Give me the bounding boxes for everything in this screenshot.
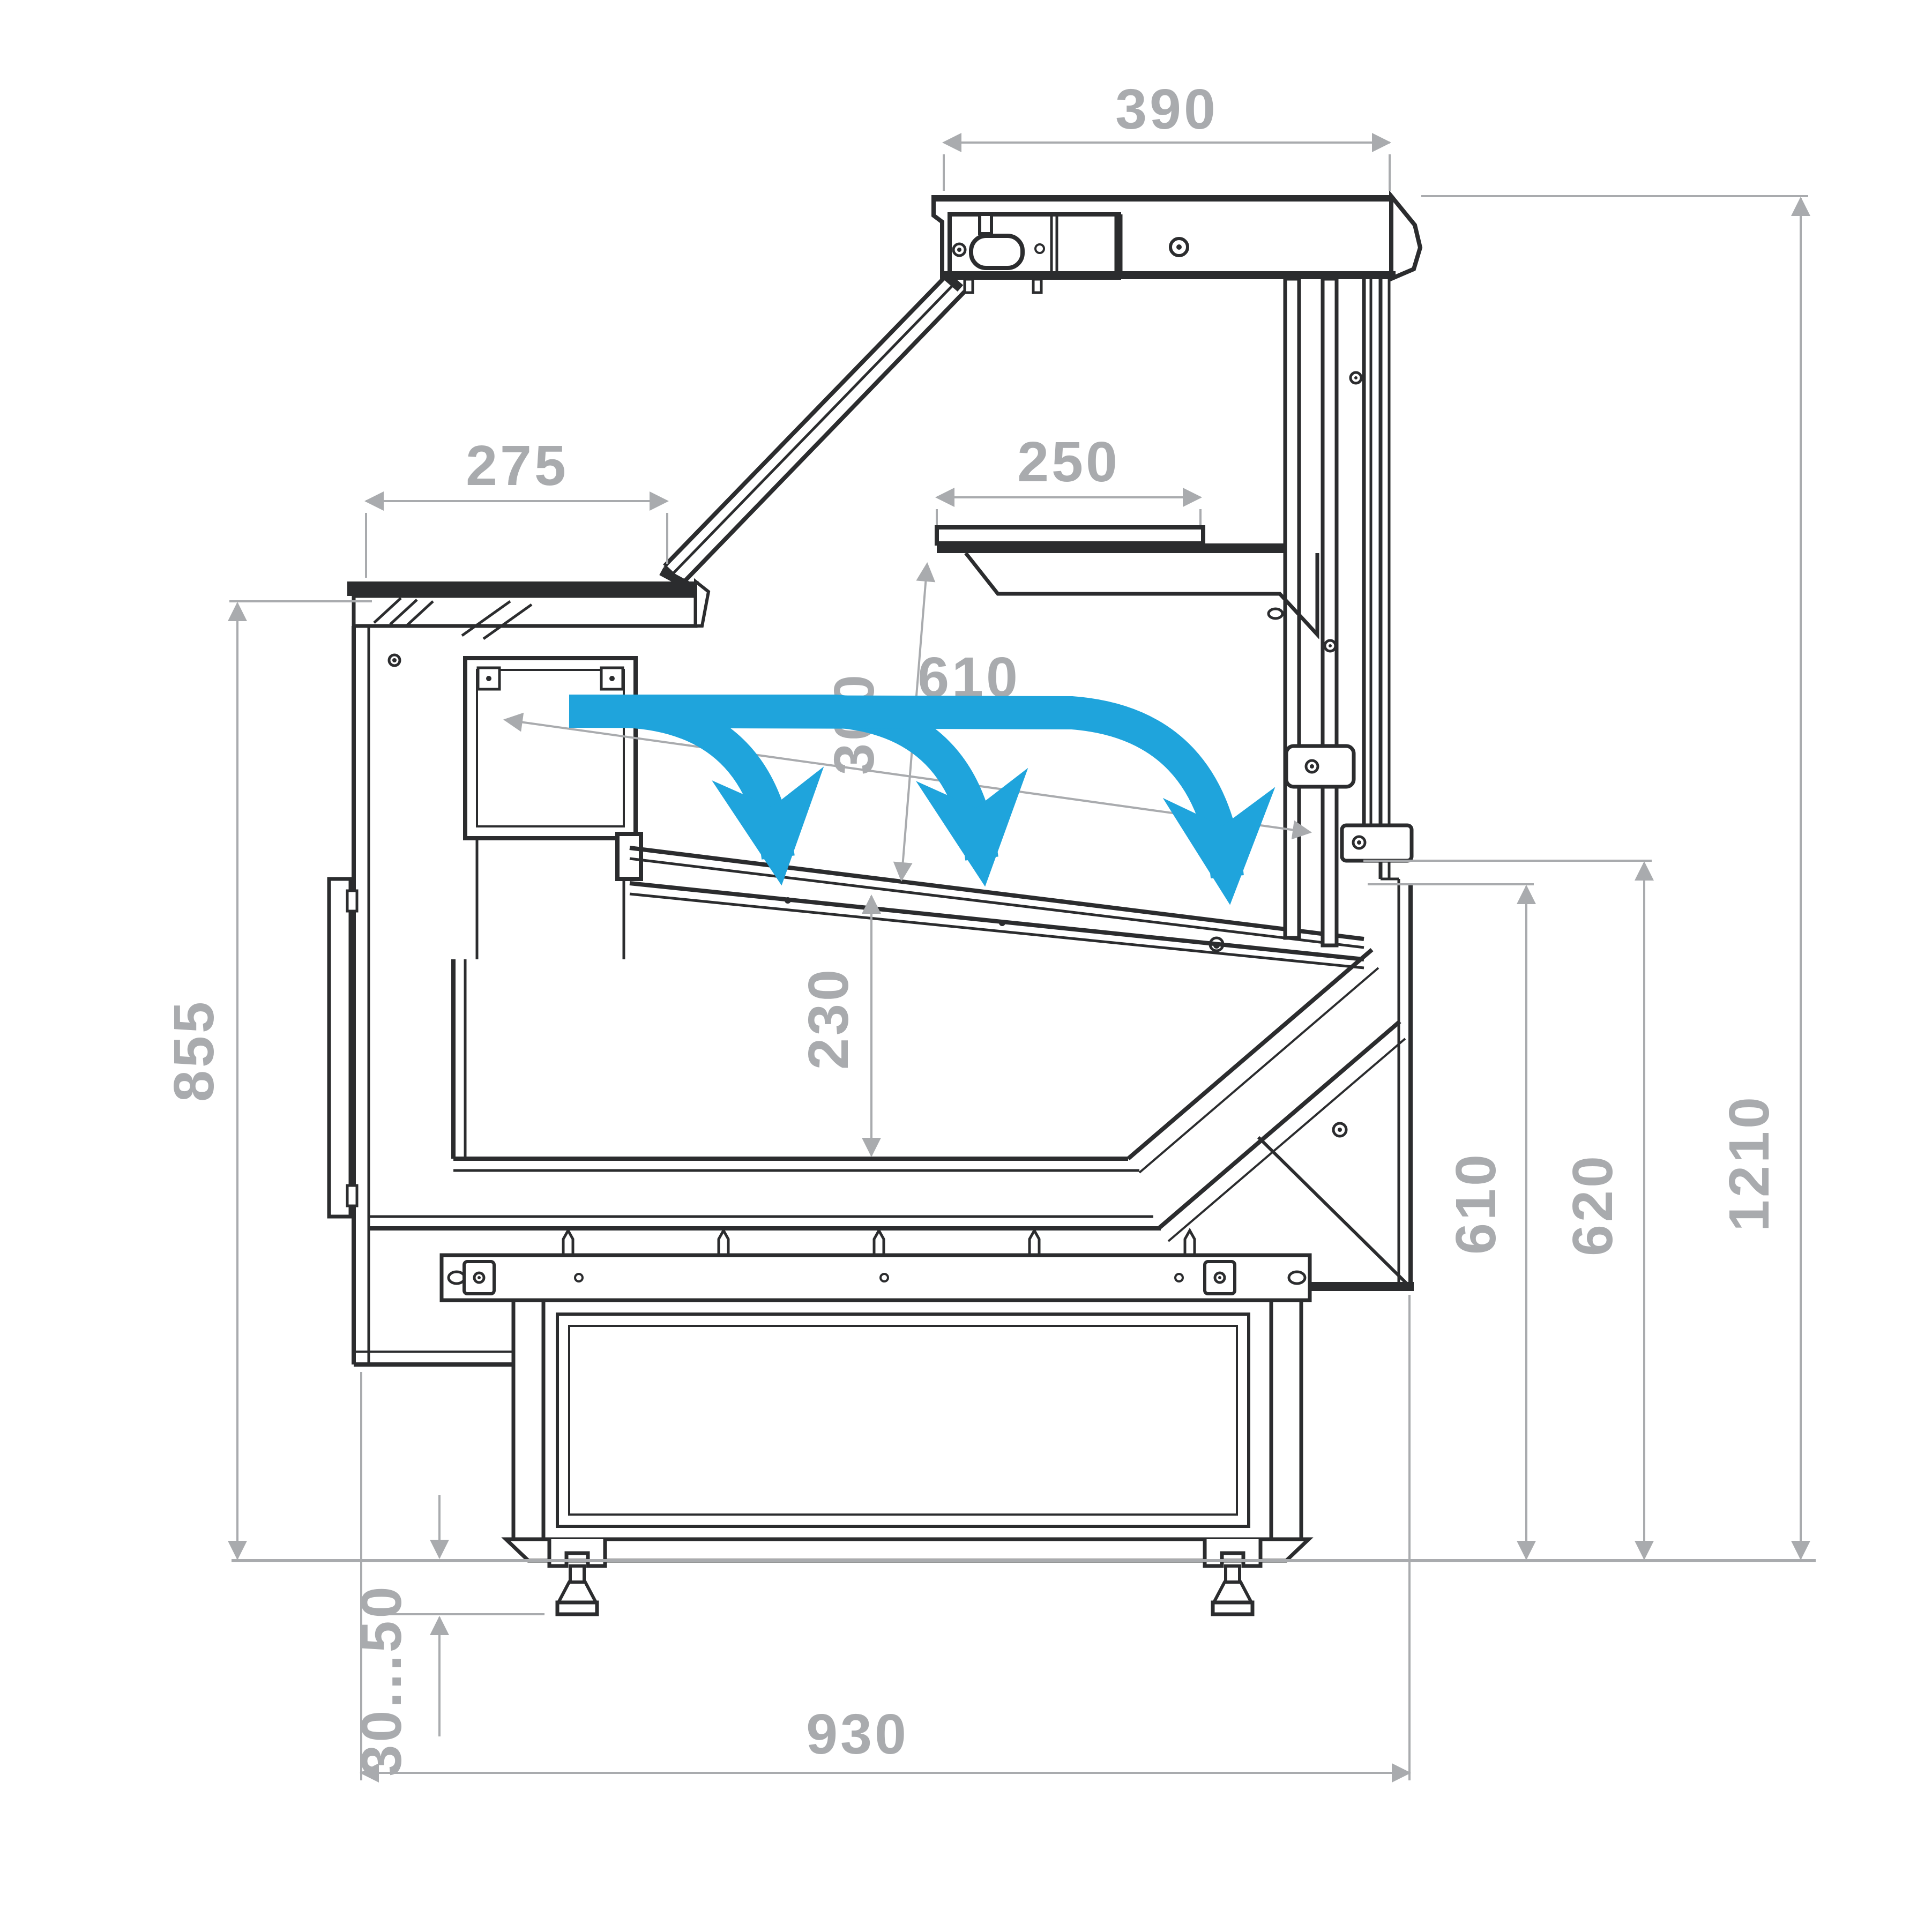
cross-section-diagram: 390 275 250 300 610 230 [0,0,1932,1924]
glass-pane-inner [683,292,965,583]
dim-well-depth: 230 [797,896,871,1155]
canopy-right-end [1391,196,1420,279]
panel-clip [347,891,357,911]
screw-dot [392,658,397,662]
shelf-underline [937,543,1286,553]
foot-screw [570,1566,584,1582]
dim-label-620: 620 [1561,1153,1624,1256]
light-clip [980,214,991,234]
dim-label-390: 390 [1115,78,1218,141]
dim-label-30-50: 30...50 [350,1584,413,1776]
refrigerated-well [370,959,1195,1255]
column-rear [1323,279,1337,945]
canopy [934,195,1420,293]
foot-pad [557,1602,597,1614]
dim-ledge-height: 620 [1363,861,1652,1558]
canopy-left-end [934,195,942,279]
foot-pad [1213,1602,1252,1614]
panel-clip [347,1185,357,1206]
foot-cone [559,1582,595,1602]
screw-dot [1357,840,1361,845]
dim-label-610-height: 610 [1444,1152,1508,1255]
dim-overall-height: 1210 [1421,196,1808,1558]
dim-label-930: 930 [806,1703,909,1766]
screw-dot [1214,942,1219,946]
bolt-dot [609,676,615,681]
deck-plate-bottom [630,859,1364,948]
glass-pane-mid [673,283,955,573]
display-deck [630,848,1364,968]
bracket-hole [1269,609,1282,618]
shelf-bracket [966,553,1317,635]
foot-screw [1226,1566,1240,1582]
base-plate [506,1539,1309,1561]
angled-duct-top [1128,950,1372,1159]
deck-support-bottom [630,894,1364,968]
screw-dot [1218,1276,1221,1279]
foot-right [1205,1539,1260,1614]
dim-canopy-depth: 390 [944,78,1390,191]
canopy-clip [965,279,973,293]
canopy-hole-dot [1176,244,1182,250]
dim-label-250: 250 [1017,430,1120,494]
case-outline [329,195,1420,1614]
glass-pane-outer [665,275,946,566]
canopy-clip [1033,279,1041,293]
pedestal-opening [557,1314,1249,1526]
shelf-slab [937,527,1203,543]
dim-label-275: 275 [466,434,569,497]
dim-shelf-depth: 250 [937,430,1200,525]
counter-top-slab [347,581,699,596]
dim-label-1210: 1210 [1718,1094,1781,1232]
pedestal-base [442,1255,1310,1561]
front-decor-panel [329,879,350,1217]
bolt-dot [486,676,491,681]
counter-right-chamfer [696,581,708,626]
base-top-rail [442,1255,1310,1300]
screw-dot [1354,376,1357,379]
screw-dot [1338,1128,1342,1132]
dim-label-230: 230 [797,967,860,1070]
dim-deck-height: 610 [1368,884,1534,1558]
column-bracket [1286,746,1354,787]
deck-screw [785,897,791,904]
screw-dot [957,248,961,252]
screw-dot [1329,644,1332,647]
dim-counter-depth: 275 [366,434,667,578]
foot-left [549,1539,605,1614]
foot-cone [1214,1582,1251,1602]
rear-angled-panels [1128,938,1407,1284]
front-glass [661,274,965,587]
lamp-icon [971,236,1023,268]
screw-dot [1310,764,1314,769]
drain-pins [563,1231,1195,1255]
deck-front-lip [617,834,641,879]
drawing-canvas: 390 275 250 300 610 230 [0,0,1932,1924]
dim-label-855: 855 [162,999,226,1102]
deck-screw [999,920,1005,926]
screw-dot [478,1276,481,1279]
angled-duct-bottom-inner [1168,1039,1405,1241]
